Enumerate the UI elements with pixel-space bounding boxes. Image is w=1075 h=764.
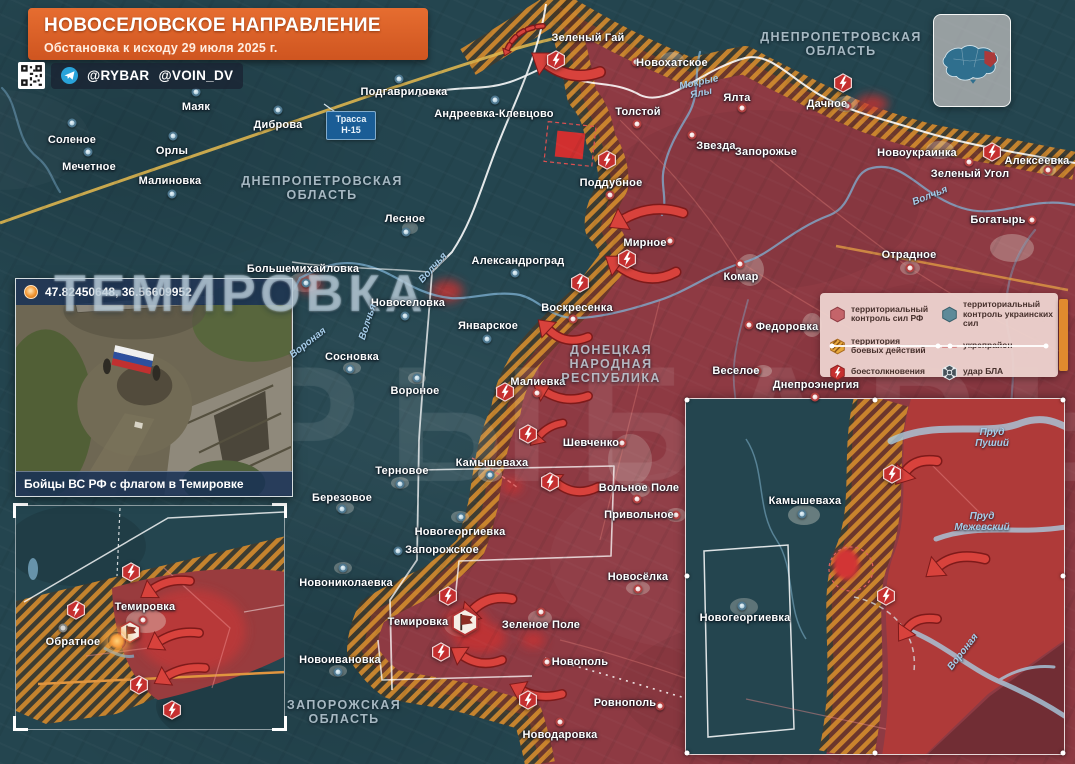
inset-corner-bracket <box>13 716 28 731</box>
telegram-handle-rybar[interactable]: @RYBAR <box>87 68 149 83</box>
inset-frame-dot <box>1061 574 1066 579</box>
inset-frame-dot <box>1061 398 1066 403</box>
qr-code <box>18 62 45 89</box>
telegram-handle-voin-dv[interactable]: @VOIN_DV <box>158 68 233 83</box>
legend-divider-dot <box>830 344 835 349</box>
legend-item-clashes: боестолкновения <box>829 364 933 381</box>
legend-item-rf-control: территориальный контроль сил РФ <box>829 300 933 329</box>
legend-item-label: территориальный контроль украинских сил <box>963 300 1053 329</box>
telegram-icon <box>61 67 78 84</box>
photo-coordinates: 47.82450648, 36.56609952 <box>45 285 192 299</box>
highway-label-line2: Н-15 <box>327 125 375 136</box>
drone-icon <box>941 364 958 381</box>
page-subtitle: Обстановка к исходу 29 июля 2025 г. <box>44 41 412 55</box>
hex-ua-icon <box>941 306 958 323</box>
page-title: НОВОСЕЛОВСКОЕ НАПРАВЛЕНИЕ <box>44 15 412 37</box>
inset-map-kamyshevakha <box>685 398 1065 755</box>
legend-accent-strip <box>1059 299 1068 371</box>
highway-label-line1: Трасса <box>327 114 375 125</box>
situation-map: РЫБАРЬ <box>0 0 1075 764</box>
inset-corner-bracket <box>13 503 28 518</box>
legend-item-label: территориальный контроль сил РФ <box>851 305 933 324</box>
inset-frame-dot <box>873 398 878 403</box>
location-pin-icon <box>24 285 38 299</box>
legend-item-label: боестолкновения <box>851 367 925 377</box>
photo-caption: Бойцы ВС РФ с флагом в Темировке <box>24 477 244 491</box>
drone-photo <box>16 279 291 495</box>
photo-coords-bar: 47.82450648, 36.56609952 <box>16 279 292 305</box>
legend-item-uav-strike: удар БЛА <box>941 364 1053 381</box>
inset-map-temirovka <box>15 505 285 730</box>
inset-frame-dot <box>1061 751 1066 756</box>
inset-frame-dot <box>685 574 690 579</box>
highway-label: Трасса Н-15 <box>326 111 376 140</box>
legend-divider-dot <box>1044 344 1049 349</box>
legend-item-label: удар БЛА <box>963 367 1003 377</box>
hex-ru-icon <box>829 306 846 323</box>
inset-frame-dot <box>685 398 690 403</box>
ukraine-map-icon <box>939 35 1005 87</box>
inset-frame-dot <box>873 751 878 756</box>
ukraine-minimap <box>933 14 1011 107</box>
inset-frame-dot <box>685 751 690 756</box>
title-banner: НОВОСЕЛОВСКОЕ НАПРАВЛЕНИЕ Обстановка к и… <box>28 8 428 60</box>
inset-corner-bracket <box>272 503 287 518</box>
telegram-bar: @RYBAR @VOIN_DV <box>51 63 243 89</box>
legend: территориальный контроль сил РФтерритори… <box>820 293 1058 377</box>
channel-handles: @RYBAR @VOIN_DV <box>18 62 243 89</box>
legend-divider-dot <box>936 344 941 349</box>
legend-divider-dot <box>948 344 953 349</box>
hex-clash-icon <box>829 364 846 381</box>
photo-inset: 47.82450648, 36.56609952 Бойцы ВС РФ с ф… <box>15 278 293 497</box>
photo-caption-bar: Бойцы ВС РФ с флагом в Темировке <box>16 471 292 496</box>
legend-item-ua-control: территориальный контроль украинских сил <box>941 300 1053 329</box>
inset-corner-bracket <box>272 716 287 731</box>
